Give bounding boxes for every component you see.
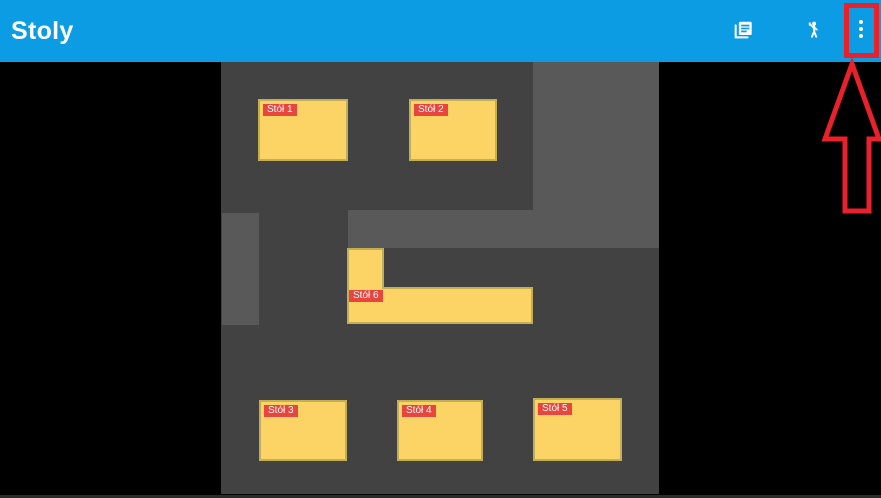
table-4-label: Stół 4 xyxy=(402,405,436,417)
overflow-menu-icon xyxy=(859,20,863,38)
table-2-label: Stół 2 xyxy=(414,104,448,116)
copy-pages-button[interactable] xyxy=(726,14,760,48)
table-3-label: Stół 3 xyxy=(264,405,298,417)
table-5[interactable]: Stół 5 xyxy=(533,398,622,461)
table-6[interactable]: Stół 6 xyxy=(347,248,533,324)
call-waiter-button[interactable] xyxy=(796,14,830,48)
app-bar: Stoly xyxy=(0,0,881,62)
floor-zone-left xyxy=(222,213,259,325)
floor-zone-middle xyxy=(348,210,534,248)
person-greeting-icon xyxy=(802,19,824,44)
annotation-up-arrow xyxy=(825,64,879,211)
table-1-label: Stół 1 xyxy=(263,104,297,116)
floor-zone-right xyxy=(533,62,659,248)
table-1[interactable]: Stół 1 xyxy=(258,99,348,161)
copy-pages-icon xyxy=(732,19,754,44)
app-screen: Stoly xyxy=(0,0,881,498)
overflow-menu-button[interactable] xyxy=(844,12,878,46)
table-3[interactable]: Stół 3 xyxy=(259,400,347,461)
table-5-label: Stół 5 xyxy=(538,403,572,415)
page-title: Stoly xyxy=(0,17,74,46)
table-6-label: Stół 6 xyxy=(349,290,383,302)
table-4[interactable]: Stół 4 xyxy=(397,400,483,461)
floor-plan: Stół 1 Stół 2 Stół 6 Stół 3 Stół 4 Stół … xyxy=(221,62,659,494)
table-6-shape xyxy=(347,248,533,324)
table-2[interactable]: Stół 2 xyxy=(409,99,497,161)
